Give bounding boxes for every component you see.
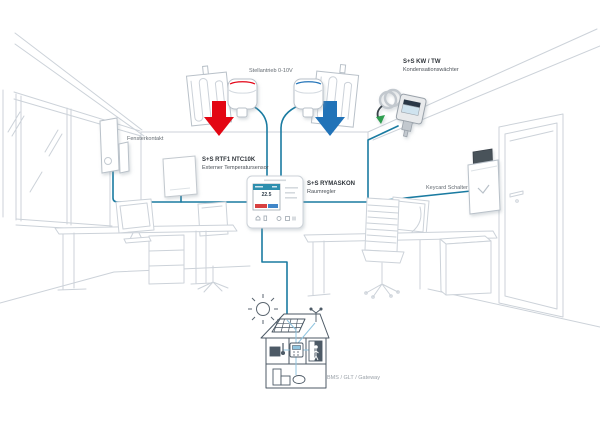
label-temp-sensor: S+S RTF1 NTC10K Externer Temperatursenso… (202, 157, 269, 171)
glass-reflection (12, 116, 24, 136)
controller-brand-mark (264, 180, 286, 182)
valve-actuator-left (228, 79, 257, 117)
person-at-door-icon (309, 341, 322, 361)
wire-actuator-right (281, 105, 300, 178)
display-cool-bar (268, 204, 278, 208)
door-keyhole (516, 200, 519, 203)
label-temp-sensor-name: S+S RTF1 NTC10K (202, 157, 269, 165)
label-controller: S+S RYMASKON Raumregler (307, 181, 355, 195)
ceiling-beam (15, 44, 144, 136)
controller-temperature-value: 22.5 (253, 192, 280, 198)
room-controller-device (247, 176, 303, 228)
label-keycard: Keycard Schalter (426, 185, 468, 192)
label-actuator: Stellantrieb 0-10V (249, 68, 293, 75)
thermostat-icon (290, 343, 303, 357)
drawer-unit (149, 235, 184, 284)
monitor-left (116, 199, 154, 243)
label-window-contact: Fensterkontakt (127, 136, 163, 143)
label-condensation-name: S+S KW / TW (403, 59, 459, 67)
application-diagram: Stellantrieb 0-10V S+S KW / TW Kondensat… (0, 0, 600, 424)
label-controller-name: S+S RYMASKON (307, 181, 355, 189)
display-heat-bar (255, 204, 267, 208)
sun-icon (248, 294, 278, 324)
glass-reflection (45, 130, 58, 152)
cabinet-right (440, 236, 491, 295)
window-contact-magnet (119, 142, 129, 173)
glass-reflection (49, 134, 62, 156)
label-temp-sensor-desc: Externer Temperatursensor (202, 165, 269, 172)
bms-building-icon (261, 308, 329, 388)
keycard-switch-device (468, 149, 500, 214)
chair-base (198, 266, 228, 292)
condensation-monitor-device (376, 90, 427, 139)
label-bms: BMS / GLT / Gateway (327, 375, 380, 382)
sensor-cable-coil (380, 90, 401, 108)
glass-reflection (30, 172, 42, 192)
temperature-sensor-device (163, 156, 197, 197)
glass-reflection (8, 112, 20, 132)
door (499, 114, 563, 317)
wire-condensation (368, 126, 398, 201)
ceiling-beam (15, 33, 142, 130)
label-controller-desc: Raumregler (307, 189, 355, 196)
office-chair-right (362, 198, 404, 298)
diagram-canvas (0, 0, 600, 424)
label-condensation-desc: Kondensationswächter (403, 67, 459, 74)
label-condensation: S+S KW / TW Kondensationswächter (403, 59, 459, 73)
wire-bms (262, 224, 287, 320)
